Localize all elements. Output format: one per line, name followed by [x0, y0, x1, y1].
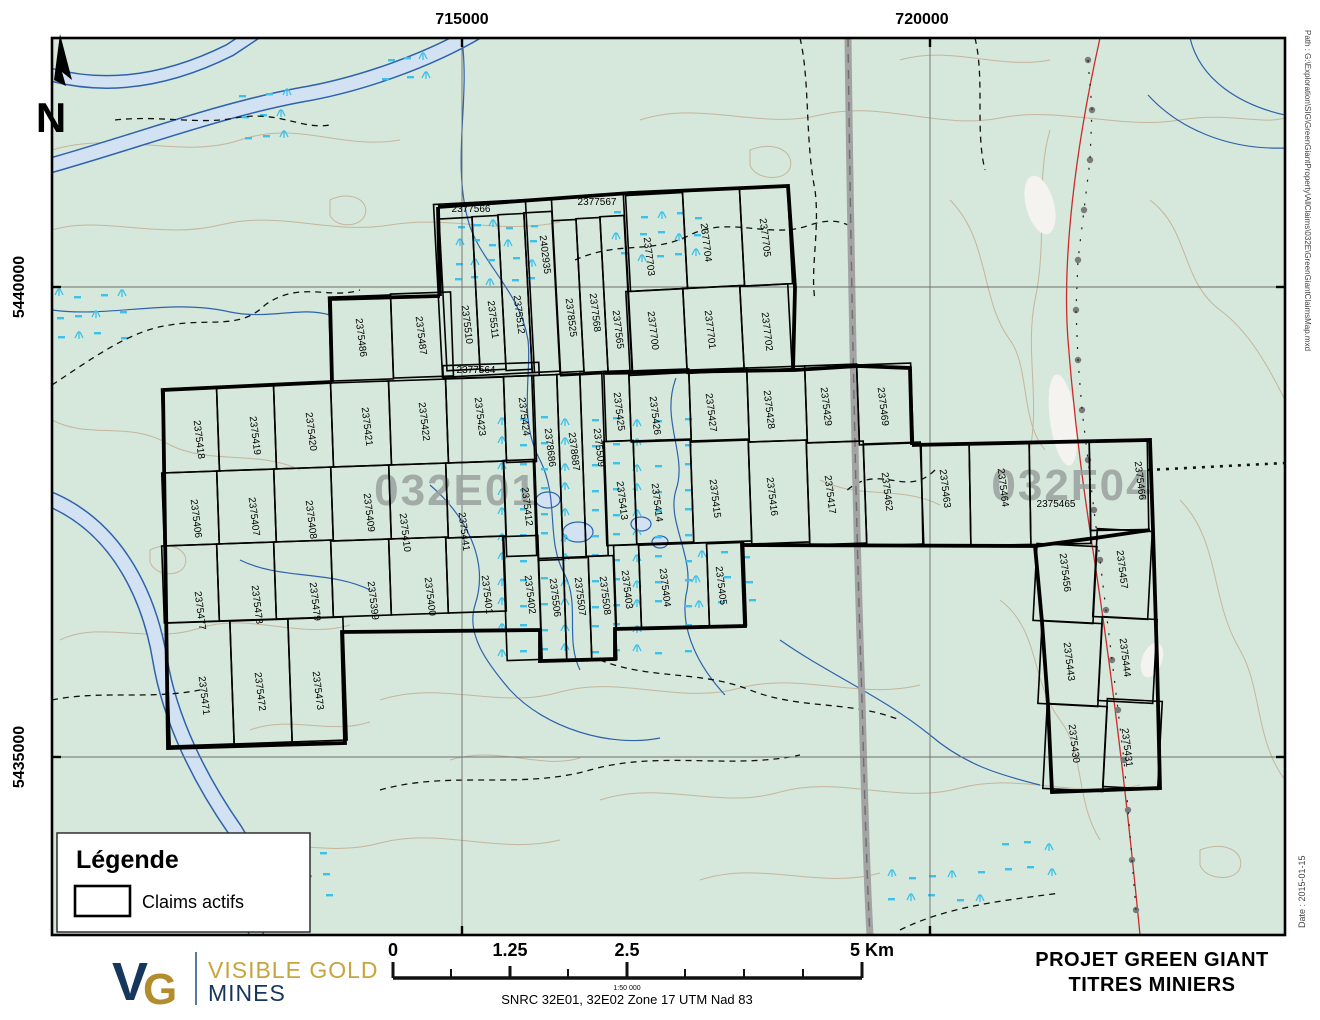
- north-arrow-label: N: [36, 94, 66, 141]
- zone-label-032E01: 032E01: [374, 466, 538, 515]
- scale-label-2-5: 2.5: [614, 940, 639, 960]
- margin-date-text: Date : 2015-01-15: [1297, 855, 1307, 928]
- map-title-line1: PROJET GREEN GIANT: [1035, 949, 1268, 971]
- claim-label: 2377567: [578, 197, 617, 208]
- grid-label-left-5440000: 5440000: [11, 256, 28, 318]
- grid-label-left-5435000: 5435000: [11, 726, 28, 788]
- legend-title: Légende: [76, 846, 179, 874]
- scale-projection: SNRC 32E01, 32E02 Zone 17 UTM Nad 83: [501, 992, 752, 1007]
- scale-label-5km: 5 Km: [850, 940, 894, 960]
- logo-mark-g: G: [143, 965, 177, 1014]
- map-title-line2: TITRES MINIERS: [1068, 974, 1235, 996]
- grid-label-top-715000: 715000: [435, 11, 488, 28]
- logo-line2: MINES: [208, 980, 286, 1006]
- margin-path-text: Path : G:\Exploration\SIG\GreenGiantProp…: [1303, 30, 1312, 351]
- legend-claim-symbol: [75, 886, 130, 916]
- scale-label-0: 0: [388, 940, 398, 960]
- legend-box: Légende Claims actifs: [57, 833, 310, 932]
- legend-item-label: Claims actifs: [142, 892, 244, 912]
- grid-label-top-720000: 720000: [895, 11, 948, 28]
- scale-ratio: 1:50 000: [613, 985, 640, 992]
- claim-label: 2377564: [457, 365, 496, 376]
- claim-label: 2375465: [1037, 499, 1076, 510]
- map-canvas: 032E01 032F04 23775662375510237551123755…: [0, 0, 1320, 1020]
- scale-label-1-25: 1.25: [492, 940, 527, 960]
